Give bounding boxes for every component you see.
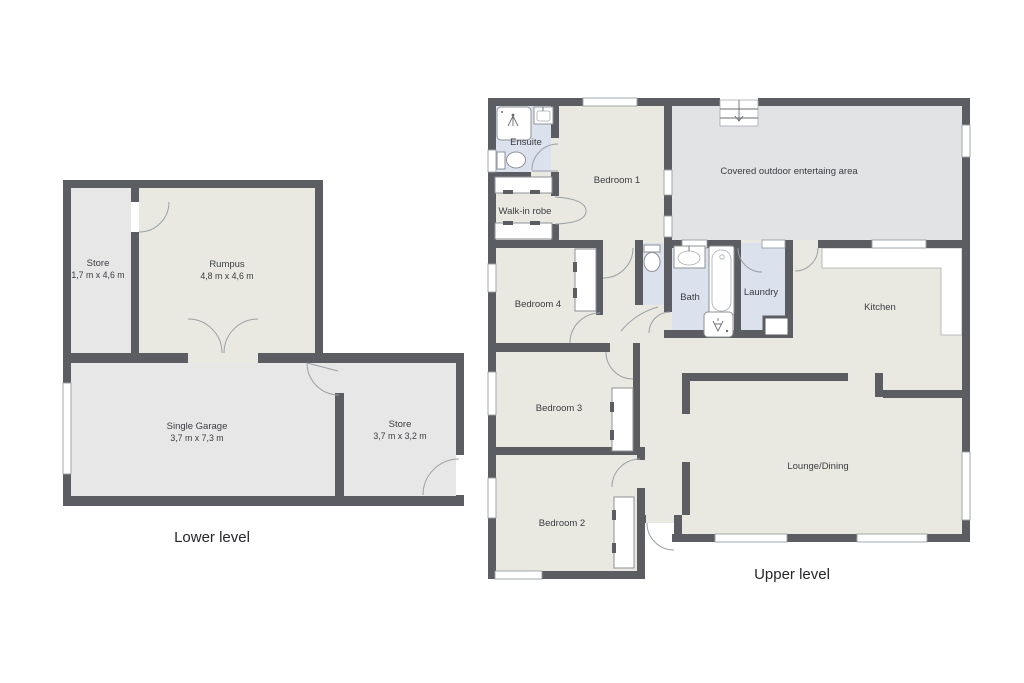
bedroom-2-bottom-window xyxy=(495,571,542,579)
room-label-bedroom-2: Bedroom 2 xyxy=(539,518,585,529)
covered-area-right-window xyxy=(962,125,970,157)
room-label-bedroom-1: Bedroom 1 xyxy=(594,175,640,186)
room-dims-garage: 3,7 m x 7,3 m xyxy=(170,433,223,443)
sink-icon xyxy=(534,107,553,124)
lounge-right-window xyxy=(962,452,970,520)
laundry-window xyxy=(762,240,785,248)
room-label-covered-outdoor: Covered outdoor entertaing area xyxy=(720,166,858,177)
bath-shower-icon xyxy=(704,312,733,337)
bedroom-3-window xyxy=(488,372,496,415)
lower-level-plan: Store 1,7 m x 4,6 m Rumpus 4,8 m x 4,6 m… xyxy=(63,180,464,546)
floor-plan-drawing: Store 1,7 m x 4,6 m Rumpus 4,8 m x 4,6 m… xyxy=(0,0,1024,683)
bedroom-4-window xyxy=(488,264,496,292)
room-label-store-1: Store xyxy=(87,258,110,269)
room-label-store-2: Store xyxy=(389,419,412,430)
room-label-rumpus: Rumpus xyxy=(209,259,245,270)
rumpus-door-threshold xyxy=(188,353,258,363)
room-label-ensuite: Ensuite xyxy=(510,137,542,148)
room-label-lounge-dining: Lounge/Dining xyxy=(787,461,848,472)
bedroom-1-east-window-a xyxy=(664,170,672,195)
lower-level-floors xyxy=(71,188,456,496)
lounge-bottom-window-a xyxy=(715,534,787,542)
laundry-tub-icon xyxy=(764,317,789,336)
room-label-laundry: Laundry xyxy=(744,287,779,298)
lower-level-title: Lower level xyxy=(174,529,250,546)
room-dims-store-1: 1,7 m x 4,6 m xyxy=(71,270,124,280)
bath-sink-icon xyxy=(674,246,705,268)
bathtub-icon xyxy=(709,246,734,315)
wc-toilet-icon xyxy=(644,245,660,272)
bedroom-4-wardrobe xyxy=(575,249,596,311)
room-label-bedroom-4: Bedroom 4 xyxy=(515,299,561,310)
kitchen-window xyxy=(872,240,926,248)
shower-icon xyxy=(497,107,531,140)
floor-plan-page: Store 1,7 m x 4,6 m Rumpus 4,8 m x 4,6 m… xyxy=(0,0,1024,683)
walk-in-robe-wardrobe-bottom xyxy=(495,223,552,239)
stairs-icon xyxy=(720,100,758,126)
room-dims-store-2: 3,7 m x 3,2 m xyxy=(373,431,426,441)
room-label-walk-in-robe: Walk-in robe xyxy=(499,206,552,217)
upper-level-title: Upper level xyxy=(754,566,830,583)
upper-level-plan: Ensuite Bedroom 1 Covered outdoor entert… xyxy=(488,98,970,583)
garage-window xyxy=(63,383,71,474)
bedroom-3-wardrobe xyxy=(612,388,633,451)
toilet-icon xyxy=(497,152,526,169)
bedroom-2-window xyxy=(488,478,496,518)
garage-store-door-threshold xyxy=(335,363,344,394)
ensuite-window xyxy=(488,150,496,172)
lounge-bottom-window-b xyxy=(857,534,927,542)
room-label-bath: Bath xyxy=(680,292,700,303)
bedroom-1-top-window xyxy=(583,98,637,106)
bedroom-2-wardrobe xyxy=(614,497,634,568)
room-dims-rumpus: 4,8 m x 4,6 m xyxy=(200,271,253,281)
bedroom-1-east-window-b xyxy=(664,216,672,237)
room-label-kitchen: Kitchen xyxy=(864,302,896,313)
room-label-garage: Single Garage xyxy=(167,421,228,432)
room-label-bedroom-3: Bedroom 3 xyxy=(536,403,582,414)
entry-porch-notch xyxy=(645,523,674,571)
